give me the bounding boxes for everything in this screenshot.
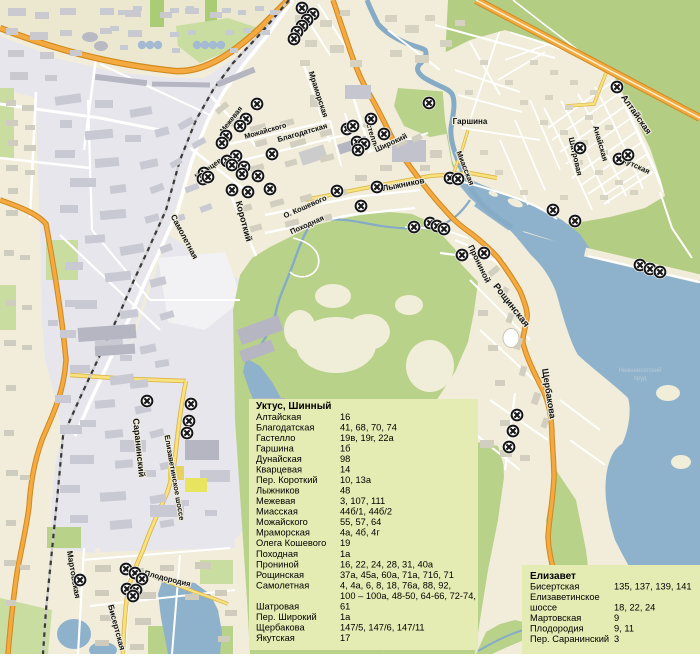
svg-text:шоссе: шоссе xyxy=(530,603,557,613)
svg-text:Лыжников: Лыжников xyxy=(256,486,300,496)
svg-text:10, 13а: 10, 13а xyxy=(340,475,372,485)
svg-text:9, 11: 9, 11 xyxy=(614,624,634,634)
svg-text:18, 22, 24: 18, 22, 24 xyxy=(614,603,655,613)
svg-text:Якутская: Якутская xyxy=(256,633,295,643)
svg-text:Благодатская: Благодатская xyxy=(256,423,314,433)
svg-text:14: 14 xyxy=(340,465,350,475)
svg-text:Алтайская: Алтайская xyxy=(256,412,301,422)
svg-text:Уктус, Шинный: Уктус, Шинный xyxy=(256,401,331,412)
svg-text:Рощинская: Рощинская xyxy=(256,570,304,580)
svg-text:Прониной: Прониной xyxy=(256,559,299,569)
svg-text:100 – 100а, 48-50, 64-66, 72-7: 100 – 100а, 48-50, 64-66, 72-74, xyxy=(340,591,476,601)
svg-text:Мраморская: Мраморская xyxy=(256,528,310,538)
svg-text:Миасская: Миасская xyxy=(256,507,298,517)
svg-text:Елизаветинское: Елизаветинское xyxy=(530,592,600,602)
svg-text:Гаршина: Гаршина xyxy=(453,117,488,126)
svg-text:Мартовская: Мартовская xyxy=(530,613,581,623)
svg-text:147/5, 147/6, 147/11: 147/5, 147/6, 147/11 xyxy=(340,622,425,632)
svg-text:Пер. Короткий: Пер. Короткий xyxy=(256,475,318,485)
svg-text:Походная: Походная xyxy=(256,549,298,559)
svg-text:1а: 1а xyxy=(340,549,351,559)
svg-text:1а: 1а xyxy=(340,612,351,622)
svg-text:37а, 45а, 60а, 71а, 71б, 71: 37а, 45а, 60а, 71а, 71б, 71 xyxy=(340,570,454,580)
svg-text:55, 57, 64: 55, 57, 64 xyxy=(340,517,381,527)
svg-text:Пер. Саранинский: Пер. Саранинский xyxy=(530,634,609,644)
svg-text:Елизавет: Елизавет xyxy=(530,571,576,582)
svg-text:61: 61 xyxy=(340,601,350,611)
svg-text:16, 22, 24, 28, 31, 40а: 16, 22, 24, 28, 31, 40а xyxy=(340,559,434,569)
svg-text:4а, 4б, 4г: 4а, 4б, 4г xyxy=(340,528,380,538)
svg-text:Шатровая: Шатровая xyxy=(256,601,299,611)
svg-text:Гастелло: Гастелло xyxy=(256,433,295,443)
svg-text:Нижнеисетский: Нижнеисетский xyxy=(619,367,662,374)
svg-text:3, 107, 111: 3, 107, 111 xyxy=(340,496,385,506)
svg-text:Можайского: Можайского xyxy=(256,517,308,527)
svg-text:Олега Кошевого: Олега Кошевого xyxy=(256,538,326,548)
svg-text:Кварцевая: Кварцевая xyxy=(256,465,302,475)
svg-text:Пер. Широкий: Пер. Широкий xyxy=(256,612,317,622)
svg-text:19в, 19г, 22а: 19в, 19г, 22а xyxy=(340,433,395,443)
svg-text:44б/1, 44б/2: 44б/1, 44б/2 xyxy=(340,507,392,517)
svg-text:Плодородия: Плодородия xyxy=(530,624,584,634)
svg-text:Гаршина: Гаршина xyxy=(256,444,295,454)
svg-text:Самолетная: Самолетная xyxy=(256,580,309,590)
svg-text:98: 98 xyxy=(340,454,350,464)
svg-text:3: 3 xyxy=(614,634,619,644)
svg-text:16: 16 xyxy=(340,412,350,422)
svg-text:19: 19 xyxy=(340,538,350,548)
svg-text:пруд: пруд xyxy=(634,376,647,382)
svg-text:9: 9 xyxy=(614,613,619,623)
svg-text:Бисертская: Бисертская xyxy=(530,582,579,592)
svg-text:41, 68, 70, 74: 41, 68, 70, 74 xyxy=(340,423,397,433)
svg-text:Дунайская: Дунайская xyxy=(256,454,302,464)
svg-text:48: 48 xyxy=(340,486,350,496)
svg-text:Межевая: Межевая xyxy=(256,496,295,506)
svg-text:4, 4а, 6, 8, 18, 76а, 88, 92,: 4, 4а, 6, 8, 18, 76а, 88, 92, xyxy=(340,580,451,590)
svg-text:Щербакова: Щербакова xyxy=(256,622,306,632)
svg-text:1б: 1б xyxy=(340,444,351,454)
svg-text:135, 137, 139, 141: 135, 137, 139, 141 xyxy=(614,582,692,592)
svg-text:17: 17 xyxy=(340,633,350,643)
